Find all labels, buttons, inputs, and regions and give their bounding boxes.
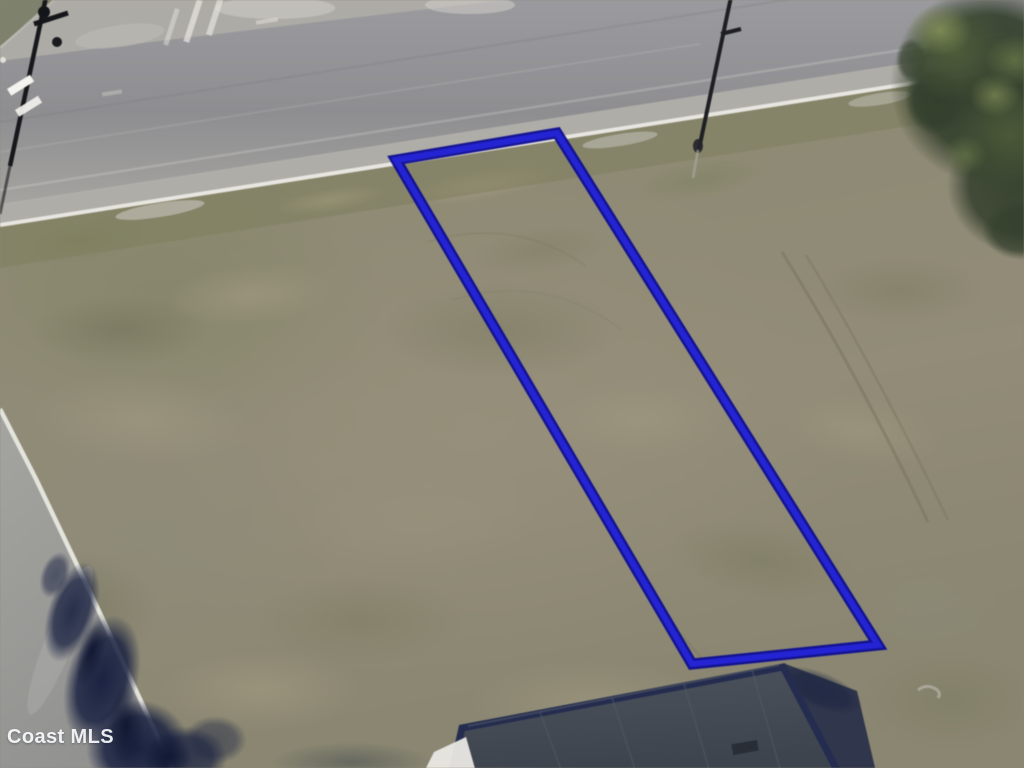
watermark-text: Coast MLS	[7, 726, 114, 749]
grass-patch	[550, 380, 730, 460]
canopy-highlight	[908, 4, 972, 56]
grass-patch	[250, 575, 470, 665]
aerial-photo-canvas	[0, 0, 1024, 768]
shadow-blob	[183, 716, 247, 764]
aerial-photo: Coast MLS	[0, 0, 1024, 768]
sign-dot	[0, 57, 6, 63]
pole-top	[38, 6, 50, 18]
pole-fixture	[52, 37, 62, 47]
canopy-highlight	[969, 73, 1021, 117]
canopy-highlight	[943, 135, 987, 175]
grass-patch	[30, 295, 210, 365]
